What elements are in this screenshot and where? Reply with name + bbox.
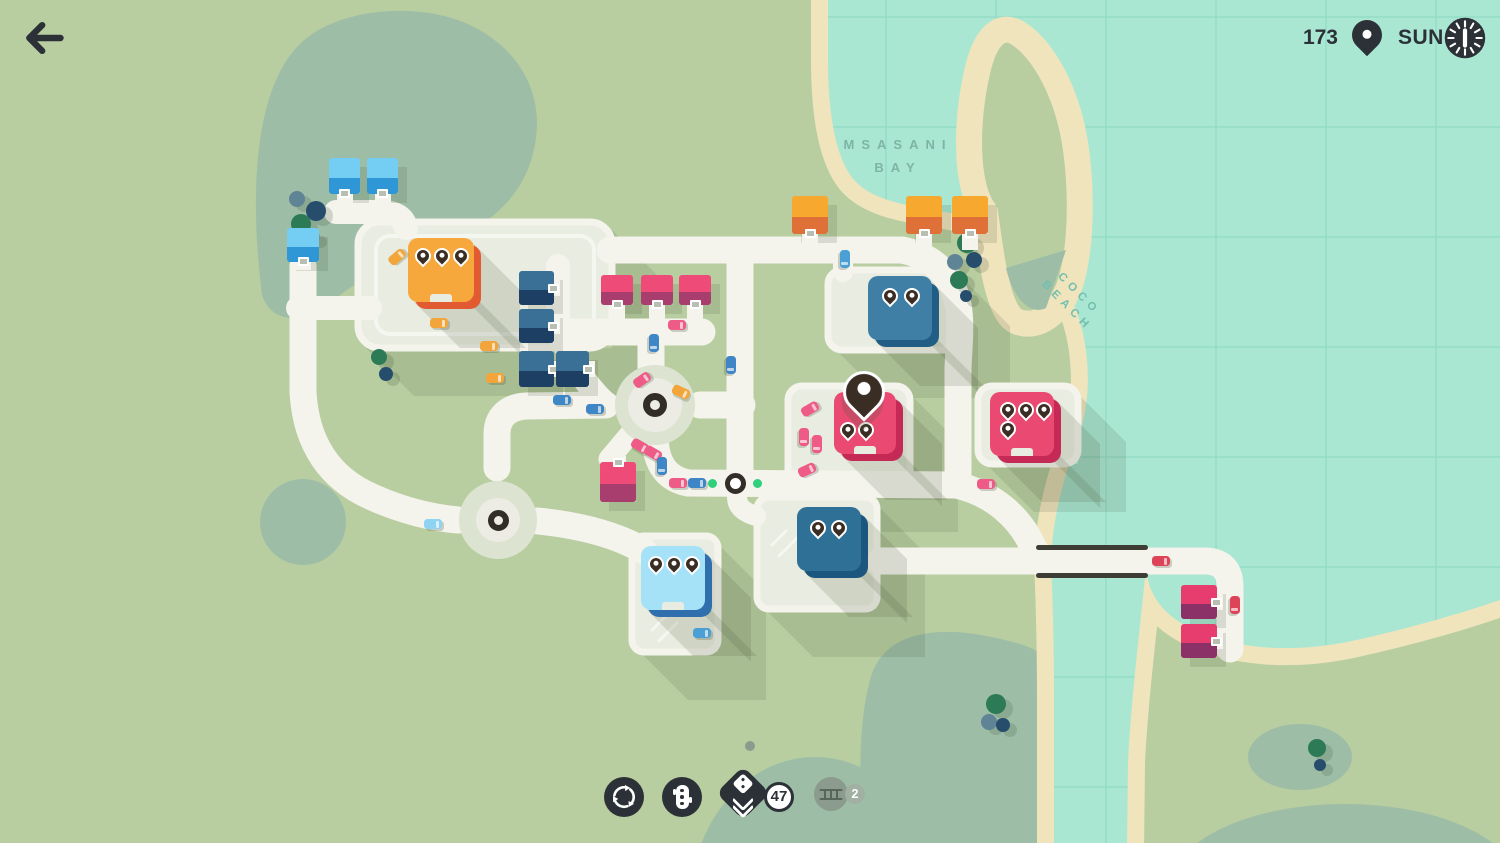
house — [679, 275, 711, 305]
tree — [966, 252, 982, 268]
house-roof — [367, 158, 398, 178]
building-door-notch — [430, 294, 452, 302]
building-top-face — [797, 507, 861, 571]
house-roof — [601, 275, 633, 292]
tiles-count-badge: 47 — [764, 782, 794, 812]
house — [519, 271, 554, 305]
destination-building — [834, 392, 896, 454]
house-roof — [906, 196, 942, 217]
car — [486, 373, 504, 383]
day-label: SUN — [1398, 26, 1442, 50]
destination-building — [641, 546, 705, 610]
roundabout[interactable] — [488, 510, 509, 531]
house — [287, 228, 319, 262]
car — [1230, 596, 1240, 614]
house — [329, 158, 360, 194]
traffic-signal-dot — [708, 479, 717, 488]
clock-icon — [1443, 16, 1487, 60]
car — [812, 435, 822, 453]
house-door — [377, 189, 388, 198]
house — [1181, 585, 1217, 619]
traffic-light-button[interactable] — [662, 777, 702, 817]
house-door — [805, 229, 816, 238]
car — [1152, 556, 1170, 566]
house-door — [339, 189, 350, 198]
house — [906, 196, 942, 234]
bridge-rail[interactable] — [1036, 573, 1148, 578]
house-door — [298, 257, 309, 266]
pin-score: 173 — [1282, 26, 1338, 50]
building-door-notch — [662, 602, 684, 610]
car — [977, 479, 995, 489]
car — [657, 457, 667, 475]
house — [601, 275, 633, 305]
roundabout-icon — [611, 784, 637, 810]
house — [556, 351, 589, 387]
car — [387, 247, 407, 266]
back-arrow-icon — [29, 25, 60, 51]
tree — [1308, 739, 1326, 757]
house-roof — [679, 275, 711, 292]
tree — [947, 254, 963, 270]
house — [519, 351, 554, 387]
house-roof — [287, 228, 319, 247]
house — [600, 462, 636, 502]
building-door-notch — [854, 446, 875, 454]
car — [649, 334, 659, 352]
tree — [950, 271, 968, 289]
map-objects-layer — [0, 0, 1500, 843]
house-door — [652, 300, 663, 309]
traffic-signal-dot — [753, 479, 762, 488]
bridge-count-badge: 2 — [845, 784, 865, 804]
car — [726, 356, 736, 374]
house-roof — [792, 196, 828, 217]
house-door — [965, 229, 976, 238]
car — [668, 320, 686, 330]
car — [799, 428, 809, 446]
destination-building — [408, 238, 474, 302]
pager-dot — [745, 741, 755, 751]
house-door — [690, 300, 701, 309]
car — [430, 318, 448, 328]
bridge-icon — [819, 788, 843, 801]
house — [952, 196, 988, 234]
tree — [371, 349, 387, 365]
bridge-button[interactable] — [814, 777, 848, 811]
roundabout[interactable] — [643, 393, 667, 417]
tree — [289, 191, 305, 207]
tree — [379, 367, 393, 381]
destination-building — [868, 276, 932, 340]
car — [797, 462, 818, 479]
car — [669, 478, 687, 488]
house — [367, 158, 398, 194]
destination-building — [797, 507, 861, 571]
tree — [996, 718, 1010, 732]
house-door — [613, 458, 624, 467]
car — [586, 404, 604, 414]
destination-building — [990, 392, 1054, 456]
traffic-light-icon — [676, 785, 689, 809]
house — [792, 196, 828, 234]
house-door — [548, 322, 559, 331]
house-door — [1211, 637, 1222, 646]
house — [519, 309, 554, 343]
car — [693, 628, 711, 638]
car — [800, 400, 821, 418]
tree — [960, 290, 972, 302]
house-door — [1211, 598, 1222, 607]
bridge-rail[interactable] — [1036, 545, 1148, 550]
house-door — [612, 300, 623, 309]
game-map[interactable]: MSASANI BAY COCO BEACH 173 SUN — [0, 0, 1500, 843]
tree — [981, 714, 997, 730]
house-roof — [952, 196, 988, 217]
back-button[interactable] — [22, 16, 66, 60]
house-roof — [641, 275, 673, 292]
house — [1181, 624, 1217, 658]
car — [480, 341, 498, 351]
car — [424, 519, 442, 529]
house — [641, 275, 673, 305]
house-door — [919, 229, 930, 238]
house-door — [583, 365, 594, 374]
roundabout-button[interactable] — [604, 777, 644, 817]
house-base — [600, 484, 636, 502]
house-door — [548, 284, 559, 293]
building-top-face — [868, 276, 932, 340]
building-door-notch — [1011, 448, 1033, 456]
car — [688, 478, 706, 488]
traffic-light-junction[interactable] — [725, 473, 746, 494]
tree — [1314, 759, 1326, 771]
car — [840, 250, 850, 268]
house-roof — [329, 158, 360, 178]
tree — [986, 694, 1006, 714]
car — [553, 395, 571, 405]
